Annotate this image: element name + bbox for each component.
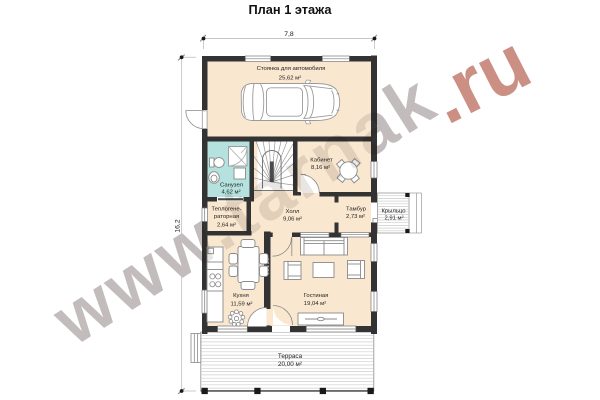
svg-text:Гостиная: Гостиная [304,293,329,299]
svg-text:11,59 м²: 11,59 м² [231,302,253,308]
svg-text:25,62 м²: 25,62 м² [279,76,301,82]
svg-text:Крыльцо: Крыльцо [381,209,406,215]
svg-text:19,04 м²: 19,04 м² [304,301,326,307]
svg-text:План 1 этажа: План 1 этажа [248,2,332,17]
svg-text:20,00 м²: 20,00 м² [278,361,302,368]
svg-text:7,8: 7,8 [284,31,294,38]
svg-text:2,91 м²: 2,91 м² [384,216,403,222]
svg-text:Кухня: Кухня [233,293,249,299]
svg-text:Терраса: Терраса [278,353,303,360]
svg-text:Тамбур: Тамбур [346,207,367,213]
svg-text:2,73 м²: 2,73 м² [346,214,365,220]
svg-text:Стоянка для автомобиля: Стоянка для автомобиля [257,66,326,72]
